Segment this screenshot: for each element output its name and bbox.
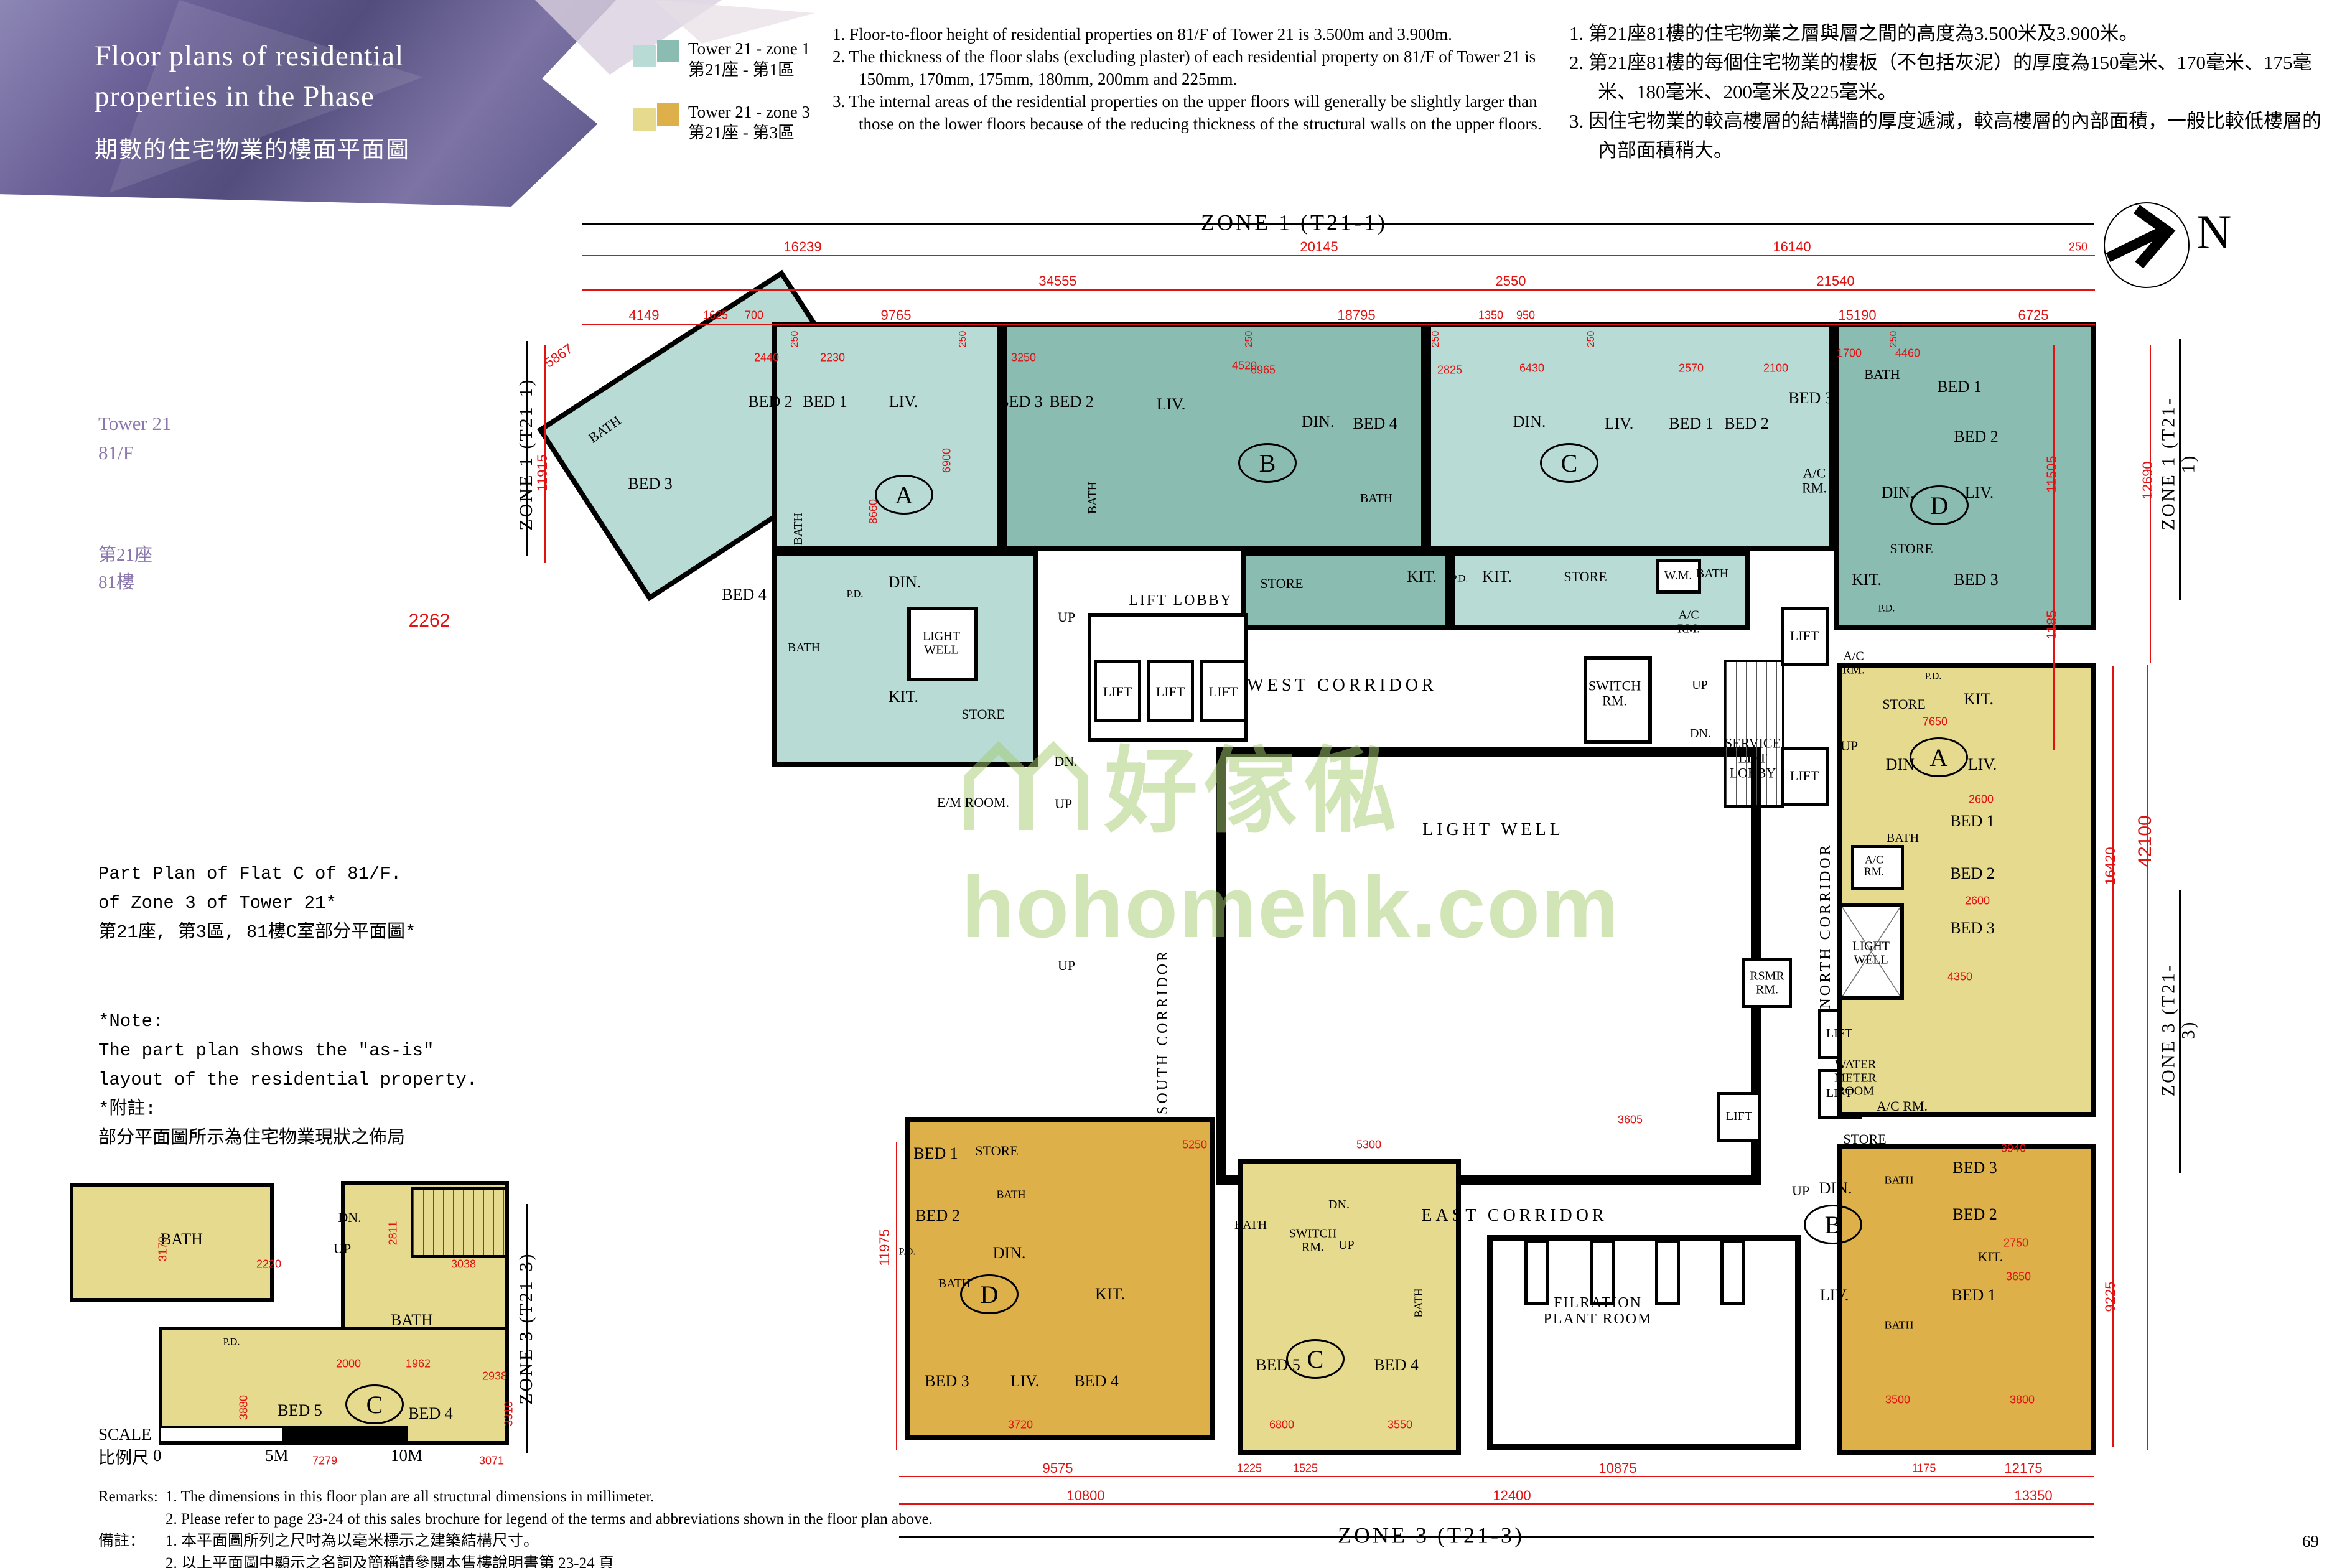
dimension-label: 6900 [941,448,954,473]
dimension-label: 1525 [1293,1462,1318,1475]
dimension-label: 250 [958,331,969,348]
legend-zone3-en: Tower 21 - zone 3 [688,102,810,123]
plan-label: BATH [1086,482,1100,514]
dimension-label: 34555 [1038,273,1076,289]
dimension-label: 12690 [2140,461,2156,499]
plan-label: SWITCH RM. [1289,1227,1337,1254]
plan-label: SWITCH RM. [1588,678,1641,708]
flat-badge: C [345,1384,404,1424]
plan-label: KIT. [1407,568,1437,586]
plan-label: BED 4 [722,586,767,604]
plan-label: LIV. [1968,756,1997,773]
zone3-light-swatch [633,108,656,131]
dimension-label: 7279 [312,1455,337,1468]
plan-label: NORTH CORRIDOR [1818,842,1834,1009]
plan-line [896,1142,897,1450]
north-arrow-icon [2102,200,2192,291]
plan-label: LIFT [1209,684,1238,699]
plan-label: LIFT [1790,628,1819,643]
plan-label: LIFT [1790,768,1819,783]
flat-badge: C [1540,443,1598,483]
dimension-label: 10875 [1598,1460,1636,1477]
plan-label: SOUTH CORRIDOR [1155,949,1172,1114]
plan-line [526,1204,528,1453]
plan-label: BATH [1884,1319,1913,1331]
remarks: Remarks: 1. The dimensions in this floor… [98,1486,933,1568]
dimension-label: 700 [745,309,763,322]
dimension-label: 42100 [2135,815,2156,867]
plan-label: EAST CORRIDOR [1421,1206,1607,1225]
part-plan-line: 第21座, 第3區, 81樓C室部分平面圖* [98,918,477,948]
plan-label: SERVICE LIFT LOBBY [1725,735,1781,780]
dimension-label: 16420 [2102,847,2119,885]
plan-label: WEST CORRIDOR [1247,676,1437,695]
brochure-page: Floor plans of residential properties in… [0,0,2337,1568]
service-stair [1724,660,1784,808]
dimension-label: 3720 [1008,1419,1033,1432]
dimension-label: 9765 [881,307,912,324]
plan-label: BED 5 [278,1402,322,1419]
dimension-label: 2100 [1763,362,1788,375]
dimension-label: 3550 [1388,1419,1412,1432]
dimension-label: 7650 [1923,716,1947,729]
notes-chinese: 1. 第21座81樓的住宅物業之層與層之間的高度為3.500米及3.900米。 … [1569,19,2331,166]
title-zh: 期數的住宅物業的樓面平面圖 [95,131,410,164]
plan-label: W.M. [1664,569,1692,583]
legend-zone1-en: Tower 21 - zone 1 [688,39,810,60]
dimension-label: 3310 [503,1401,516,1426]
part-plan-line: The part plan shows the ″as-is″ [98,1037,477,1066]
title-line1: Floor plans of residential [95,40,404,72]
plan-label: UP [1840,739,1858,754]
plan-label: BATH [1696,567,1728,581]
dimension-label: 950 [1516,309,1535,322]
dimension-label: 250 [2069,241,2087,254]
filtration-pillar [1655,1239,1680,1305]
plan-label: A/C RM. [1842,650,1865,676]
dimension-label: 250 [1586,331,1597,348]
dimension-label: 2440 [754,352,779,365]
plan-label: E/M ROOM. [937,795,1009,810]
plan-label: A/C RM. [1802,465,1827,495]
remark-zh-1: 1. 本平面圖所列之尺吋為以毫米標示之建築結構尺寸。 [166,1530,539,1552]
plan-label: KIT. [1852,571,1882,589]
dimension-label: 3605 [1618,1114,1643,1127]
scale-10m: 10M [391,1446,422,1465]
dimension-label: 2811 [387,1221,400,1246]
plan-label: LIV. [889,393,918,411]
dimension-label: 1962 [406,1358,431,1371]
notes-english: 1. Floor-to-floor height of residential … [833,24,1557,136]
dimension-label: 6725 [2018,307,2049,324]
plan-label: LIFT [1726,1110,1752,1124]
part-plan-line: of Zone 3 of Tower 21* [98,889,477,918]
dimension-label: 1700 [1837,347,1862,360]
dimension-label: 13350 [2014,1488,2052,1504]
plan-label: BED 4 [1074,1373,1119,1390]
note-zh-3: 3. 因住宅物業的較高樓層的結構牆的厚度遞減，較高樓層的內部面積，一般比較低樓層… [1569,106,2331,165]
dimension-label: 15190 [1838,307,1876,324]
floor-zh: 81樓 [98,572,134,592]
plan-label: WATER METER ROOM [1834,1058,1877,1099]
plan-label: STORE [1890,541,1933,556]
dimension-label: 18795 [1337,307,1375,324]
scale-bar-black [282,1426,408,1443]
legend-item-zone1: Tower 21 - zone 1 第21座 - 第1區 [633,39,810,81]
plan-label: LIFT LOBBY [1129,593,1233,609]
dimension-label: 2570 [1679,362,1704,375]
plan-label: STORE [1882,697,1925,712]
plan-label: BED 1 [913,1145,958,1162]
dimension-label: 2000 [336,1358,361,1371]
plan-label: STORE [1260,576,1303,591]
plan-label: LIFT [1103,684,1132,699]
plan-label: DN. [1054,754,1077,769]
plan-label: DIN. [889,574,921,591]
plan-label: LIV. [1010,1373,1039,1390]
flat-badge: C [1286,1339,1345,1379]
scale-bar [159,1426,408,1443]
flat-badge: D [1910,485,1969,525]
plan-label: LIGHT WELL [1422,821,1564,839]
plan-label: STORE [961,707,1004,722]
dimension-label: 3940 [2001,1142,2026,1155]
flat-b-block [1002,322,1426,551]
plan-line [582,255,2095,256]
plan-label: STORE [1564,569,1607,584]
plan-line [2053,345,2055,750]
plan-label: BED 3 [1954,571,1999,589]
dimension-label: 4149 [629,307,660,324]
dimension-label: 3038 [451,1258,476,1271]
plan-label: KIT. [1482,568,1512,586]
scale-bar-white [159,1426,282,1443]
scale-0: 0 [153,1446,162,1465]
plan-label: BED 1 [803,393,847,411]
dimension-label: 21540 [1816,273,1854,289]
flat-badge: B [1804,1205,1862,1244]
dimension-label: 12175 [2004,1460,2042,1477]
plan-label: DIN. [1302,413,1335,431]
plan-label: KIT. [1978,1249,2003,1264]
plan-label: BED 2 [915,1207,960,1225]
tower-en: Tower 21 [98,413,172,434]
scale-label-zh: 比例尺 [98,1444,152,1468]
dimension-label: 16239 [783,239,821,255]
part-plan-line: 部分平面圖所示為住宅物業現狀之佈局 [98,1124,477,1154]
dimension-label: 5300 [1356,1139,1381,1152]
plan-line [582,324,2095,325]
plan-label: A/C RM. [1864,854,1885,879]
plan-label: DIN. [1513,413,1546,431]
plan-line [2179,339,2181,600]
dimension-label: 9575 [1043,1460,1073,1477]
plan-label: LIFT [1156,684,1185,699]
title-line2: properties in the Phase [95,80,375,113]
part-plan-stair [411,1187,508,1258]
plan-label: BED 2 [1950,865,1995,882]
plan-label: LIV. [1605,415,1633,432]
dimension-label: 3880 [238,1395,251,1420]
flat-c-extension [1450,551,1750,630]
dimension-label: 2825 [1437,364,1462,377]
note-zh-1: 1. 第21座81樓的住宅物業之層與層之間的高度為3.500米及3.900米。 [1569,19,2331,48]
plan-line [2179,890,2181,1173]
north-indicator: N [2102,200,2192,291]
plan-label: DIN. [993,1244,1026,1262]
dimension-label: 3170 [157,1236,170,1261]
north-letter: N [2196,204,2231,260]
dimension-label: 16140 [1773,239,1811,255]
dimension-label: 2600 [1965,895,1990,908]
plan-label: LIV. [1820,1287,1849,1304]
dimension-label: 1225 [1237,1462,1262,1475]
plan-line [899,1536,2094,1538]
plan-label: UP [1058,958,1075,973]
zone3-dark-swatch [657,103,679,126]
plan-label: BED 1 [1669,415,1714,432]
part-plan-line: layout of the residential property. [98,1066,477,1095]
plan-label: UP [1058,610,1075,625]
tower-floor-label: Tower 21 81/F 第21座 81樓 [98,409,172,596]
plan-label: BATH [996,1188,1025,1200]
plan-line [582,289,2095,291]
dimension-label: 1625 [703,309,728,322]
part-plan-line: *Note: [98,1007,477,1037]
plan-line [2147,665,2148,1450]
plan-label: BED 2 [1724,415,1769,432]
dimension-label: 2550 [1496,273,1526,289]
floor-en: 81/F [98,442,134,464]
legend-item-zone3: Tower 21 - zone 3 第21座 - 第3區 [633,102,810,144]
dimension-label: 2600 [1969,793,1994,806]
plan-label: DN. [1690,727,1711,741]
filtration-pillar [1720,1239,1745,1305]
plan-label: BED 1 [1950,813,1995,830]
light-well-main [1216,747,1761,1185]
flat-badge: A [875,475,933,515]
note-en-2: 2. The thickness of the floor slabs (exc… [833,46,1557,91]
dimension-label: 1350 [1478,309,1503,322]
header-shard [653,0,815,44]
dimension-label: 3071 [479,1455,504,1468]
plan-label: P.D. [899,1246,916,1257]
plan-label: BATH [1412,1288,1424,1317]
plan-label: STORE [975,1144,1018,1159]
plan-label: DN. [338,1210,361,1225]
dimension-label: 1175 [1912,1462,1936,1475]
plan-label: BED 3 [1788,390,1833,407]
dimension-label: 3650 [2006,1271,2031,1284]
plan-label: P.D. [1878,603,1895,614]
zone3-flat-c-block [1238,1159,1461,1455]
zone1-dark-swatch [657,40,679,62]
plan-label: BED 1 [1937,378,1982,396]
plan-line [899,1476,2094,1477]
dimension-label: 10800 [1066,1488,1104,1504]
dimension-label: 2262 [409,610,450,632]
plan-label: DIN. [1882,484,1915,502]
plan-label: LIV. [1157,396,1185,413]
plan-label: BED 2 [1954,428,1999,446]
plan-label: RSMR RM. [1750,969,1784,996]
plan-label: BED 4 [1374,1356,1419,1374]
plan-label: BED 1 [1951,1287,1996,1304]
dimension-label: 4460 [1895,347,1920,360]
dimension-label: 20145 [1300,239,1338,255]
plan-label: BED 3 [998,393,1043,411]
dimension-label: 2750 [2003,1237,2028,1250]
dimension-label: 11505 [2044,455,2060,493]
plan-label: UP [1692,679,1708,693]
part-plan-line: *附註: [98,1095,477,1124]
remarks-label-zh: 備註： [98,1530,166,1552]
plan-label: BED 3 [1950,920,1995,937]
part-plan-note: Part Plan of Flat C of 81/F. of Zone 3 o… [98,860,477,1154]
dimension-label: 250 [1888,331,1900,348]
plan-label: FILRATION PLANT ROOM [1544,1295,1653,1328]
plan-label: BED 3 [925,1373,969,1390]
plan-label: BED 4 [408,1405,453,1422]
dimension-label: 11915 [534,454,551,492]
dimension-label: 2230 [820,352,845,365]
dimension-label: 11975 [877,1229,893,1266]
dimension-label: 1185 [2044,610,2060,639]
zone3-flat-a-block [1837,663,2096,1117]
plan-label: BATH [788,642,820,655]
plan-label: A/C RM. [1877,1099,1928,1114]
legend: Tower 21 - zone 1 第21座 - 第1區 Tower 21 - … [633,39,810,165]
dimension-label: 6800 [1269,1419,1294,1432]
plan-label: UP [334,1241,351,1256]
plan-line [526,341,528,556]
dimension-label: 250 [790,331,801,348]
plan-label: BATH [1887,832,1919,846]
dimension-label: 3500 [1885,1394,1910,1407]
dimension-label: 9225 [2102,1282,2119,1312]
plan-label: LIV. [1965,484,1994,502]
plan-label: KIT. [889,688,918,706]
plan-line [2150,345,2151,663]
plan-label: UP [1338,1239,1355,1253]
dimension-label: 250 [1430,331,1442,348]
scale-5m: 5M [265,1446,289,1465]
flat-badge: B [1238,443,1297,483]
legend-zone1-zh: 第21座 - 第1區 [688,60,810,81]
plan-label: BATH [792,513,806,545]
remark-zh-2: 2. 以上平面圖中顯示之名詞及簡稱請參閱本售樓說明書第 23-24 頁 [166,1552,614,1568]
tower-zh: 第21座 [98,545,152,565]
plan-label: DIN. [1819,1180,1852,1197]
plan-label: P.D. [1925,671,1942,681]
plan-label: BED 3 [628,475,673,493]
plan-line [544,345,546,563]
plan-label: BATH [1234,1219,1267,1233]
plan-line [582,223,2094,225]
plan-label: BED 2 [748,393,793,411]
dimension-label: 6965 [1251,364,1276,377]
plan-label: BATH [1884,1174,1913,1186]
dimension-label: 3800 [2010,1394,2035,1407]
plan-line [2112,666,2114,1447]
plan-label: LIGHT WELL [923,630,960,656]
remarks-label-en: Remarks: [98,1486,166,1508]
scale-indicator: SCALE 比例尺 0 5M 10M [98,1425,152,1468]
dimension-label: 5867 [541,341,576,371]
dimension-label: 3250 [1011,352,1036,365]
dimension-label: 5250 [1182,1139,1207,1152]
plan-label: UP [1792,1183,1809,1198]
flat-badge: D [960,1274,1019,1314]
plan-label: A/C RM. [1677,609,1700,635]
plan-line [899,1503,2094,1505]
scale-label-en: SCALE [98,1425,152,1444]
plan-label: LIFT [1826,1027,1852,1041]
note-en-3: 3. The internal areas of the residential… [833,91,1557,136]
plan-label: UP [1055,796,1072,811]
dimension-label: 2220 [256,1258,281,1271]
dimension-label: 2938 [482,1370,507,1383]
note-zh-2: 2. 第21座81樓的每個住宅物業的樓板（不包括灰泥）的厚度為150毫米、170… [1569,48,2331,106]
note-en-1: 1. Floor-to-floor height of residential … [833,24,1557,46]
plan-label: STORE [1843,1132,1886,1147]
flat-a-block [772,322,1002,551]
legend-zone3-zh: 第21座 - 第3區 [688,123,810,144]
plan-label: BED 3 [1952,1159,1997,1177]
plan-label: BED 2 [1049,393,1094,411]
plan-label: BATH [1360,492,1392,506]
flat-badge: A [1910,737,1968,777]
plan-label: DN. [1328,1198,1350,1212]
remark-en-1: 1. The dimensions in this floor plan are… [166,1486,655,1508]
plan-label: P.D. [223,1337,240,1347]
plan-label: P.D. [1452,573,1468,584]
plan-label: KIT. [1095,1286,1125,1303]
dimension-label: 4350 [1947,971,1972,984]
dimension-label: 6430 [1519,362,1544,375]
flat-c-block [1426,322,1834,551]
plan-label: KIT. [1964,691,1994,708]
part-plan-line: Part Plan of Flat C of 81/F. [98,860,477,889]
plan-label: BATH [1864,367,1900,382]
plan-label: BATH [391,1312,433,1329]
page-number: 69 [2302,1532,2319,1551]
dimension-label: 12400 [1493,1488,1531,1504]
plan-label: BED 2 [1952,1206,1997,1223]
plan-label: P.D. [847,589,864,599]
plan-label: BED 4 [1353,415,1397,432]
remark-en-2: 2. Please refer to page 23-24 of this sa… [166,1508,933,1531]
plan-label: LIGHT WELL [1852,940,1890,966]
page-title: Floor plans of residential properties in… [95,36,410,164]
zone1-light-swatch [633,45,656,67]
dimension-label: 250 [1244,331,1255,348]
